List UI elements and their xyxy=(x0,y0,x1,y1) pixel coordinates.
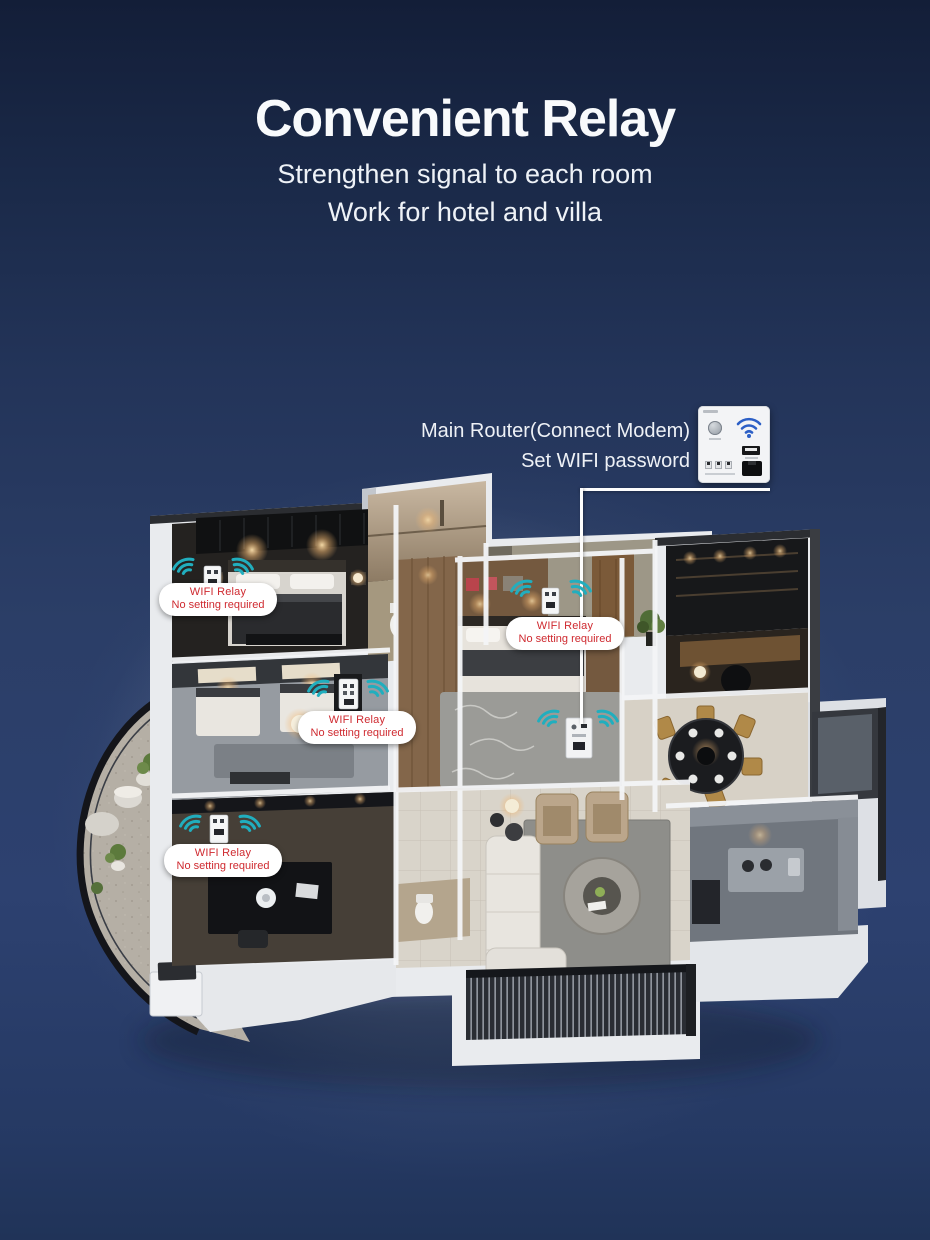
router-callout-line-1: Main Router(Connect Modem) xyxy=(421,416,690,446)
usb-port-caption xyxy=(745,457,758,459)
relay-label-line-2: No setting required xyxy=(508,633,622,646)
wifi-icon xyxy=(736,416,762,438)
page-background: { "header": { "title": "Convenient Relay… xyxy=(0,0,930,1240)
wifi-relay-label: WIFI Relay No setting required xyxy=(506,617,624,650)
router-brand-mark xyxy=(703,410,718,413)
wifi-signal-icon xyxy=(533,686,623,730)
kitchen xyxy=(688,799,858,942)
wifi-signal-icon xyxy=(175,791,265,835)
wifi-signal-icon xyxy=(303,656,393,700)
router-callout: Main Router(Connect Modem) Set WIFI pass… xyxy=(421,416,690,476)
power-button-caption xyxy=(709,438,721,440)
terminal-ports-caption xyxy=(705,473,735,475)
wifi-relay-label: WIFI Relay No setting required xyxy=(298,711,416,744)
relay-label-line-1: WIFI Relay xyxy=(508,620,622,633)
balcony-bottom xyxy=(466,964,696,1040)
floorplan-render xyxy=(0,0,930,1240)
callout-leader-horizontal xyxy=(580,488,770,491)
power-button-icon xyxy=(708,421,722,435)
ethernet-port-icon xyxy=(742,461,762,476)
relay-label-line-2: No setting required xyxy=(166,860,280,873)
relay-label-line-1: WIFI Relay xyxy=(166,847,280,860)
router-callout-line-2: Set WIFI password xyxy=(421,446,690,476)
terminal-ports-icon xyxy=(705,461,732,469)
wifi-signal-icon xyxy=(168,534,258,578)
relay-label-line-1: WIFI Relay xyxy=(161,586,275,599)
wifi-relay-label: WIFI Relay No setting required xyxy=(159,583,277,616)
router-panel-figure xyxy=(698,406,770,483)
usb-port-icon xyxy=(742,446,760,455)
wifi-relay-label: WIFI Relay No setting required xyxy=(164,844,282,877)
relay-label-line-1: WIFI Relay xyxy=(300,714,414,727)
wifi-signal-icon xyxy=(506,556,596,600)
relay-label-line-2: No setting required xyxy=(161,599,275,612)
relay-label-line-2: No setting required xyxy=(300,727,414,740)
